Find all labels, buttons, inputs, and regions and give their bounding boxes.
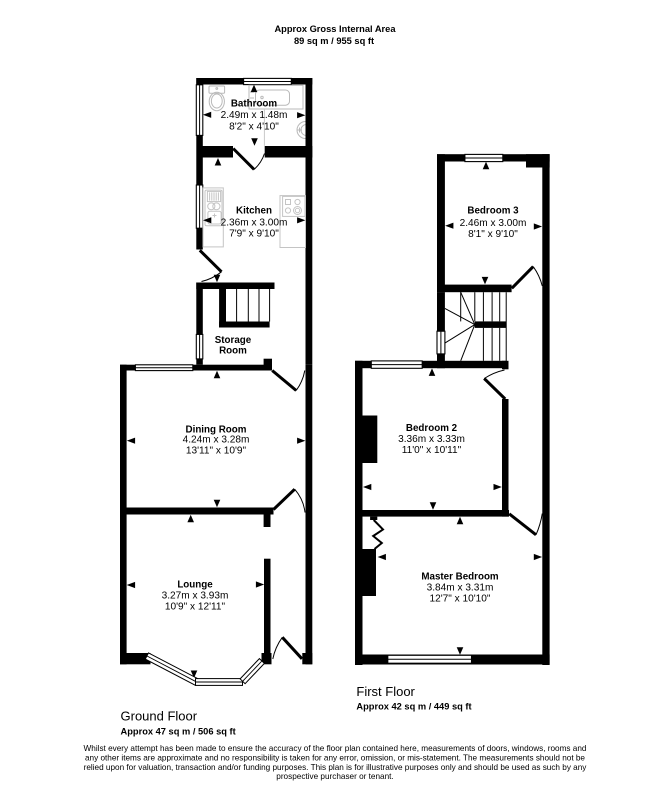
svg-text:10'9" x 12'11": 10'9" x 12'11" bbox=[165, 601, 226, 612]
svg-text:Storage: Storage bbox=[215, 335, 252, 346]
svg-text:Bedroom 2: Bedroom 2 bbox=[406, 423, 458, 434]
svg-text:prospective purchaser or tenan: prospective purchaser or tenant. bbox=[276, 772, 393, 781]
svg-text:3.36m x 3.33m: 3.36m x 3.33m bbox=[398, 434, 465, 445]
svg-text:2.36m x 3.00m: 2.36m x 3.00m bbox=[221, 218, 288, 229]
svg-text:4.24m x 3.28m: 4.24m x 3.28m bbox=[183, 435, 250, 446]
svg-text:8'1" x 9'10": 8'1" x 9'10" bbox=[468, 229, 518, 240]
svg-text:any other items are approximat: any other items are approximate and no r… bbox=[85, 753, 585, 762]
svg-text:12'7" x 10'10": 12'7" x 10'10" bbox=[430, 594, 491, 605]
svg-text:Kitchen: Kitchen bbox=[236, 206, 272, 217]
svg-text:Bedroom 3: Bedroom 3 bbox=[467, 205, 519, 216]
svg-text:Whilst every attempt has been: Whilst every attempt has been made to en… bbox=[84, 744, 587, 753]
svg-text:8'2" x 4'10": 8'2" x 4'10" bbox=[229, 121, 279, 132]
svg-text:Approx 47 sq m / 506 sq ft: Approx 47 sq m / 506 sq ft bbox=[121, 726, 236, 736]
svg-text:7'9" x 9'10": 7'9" x 9'10" bbox=[229, 229, 279, 240]
svg-text:First Floor: First Floor bbox=[356, 684, 415, 699]
svg-text:3.84m x 3.31m: 3.84m x 3.31m bbox=[427, 583, 494, 594]
svg-text:Lounge: Lounge bbox=[177, 579, 213, 590]
svg-text:89 sq m / 955 sq ft: 89 sq m / 955 sq ft bbox=[294, 36, 374, 46]
svg-text:11'0" x 10'11": 11'0" x 10'11" bbox=[402, 445, 462, 456]
svg-text:Ground Floor: Ground Floor bbox=[121, 709, 198, 724]
svg-text:Master Bedroom: Master Bedroom bbox=[421, 572, 499, 583]
svg-text:13'11" x 10'9": 13'11" x 10'9" bbox=[186, 445, 247, 456]
svg-text:2.49m x 1.48m: 2.49m x 1.48m bbox=[221, 110, 288, 121]
svg-text:Bathroom: Bathroom bbox=[231, 99, 278, 110]
svg-text:Approx Gross Internal Area: Approx Gross Internal Area bbox=[274, 24, 396, 34]
svg-text:2.46m x 3.00m: 2.46m x 3.00m bbox=[460, 218, 527, 229]
svg-text:Approx 42 sq m / 449 sq ft: Approx 42 sq m / 449 sq ft bbox=[356, 702, 471, 712]
svg-text:relied upon for valuation, tra: relied upon for valuation, transaction a… bbox=[84, 763, 588, 772]
svg-text:Room: Room bbox=[219, 346, 247, 357]
svg-text:3.27m x 3.93m: 3.27m x 3.93m bbox=[162, 590, 229, 601]
